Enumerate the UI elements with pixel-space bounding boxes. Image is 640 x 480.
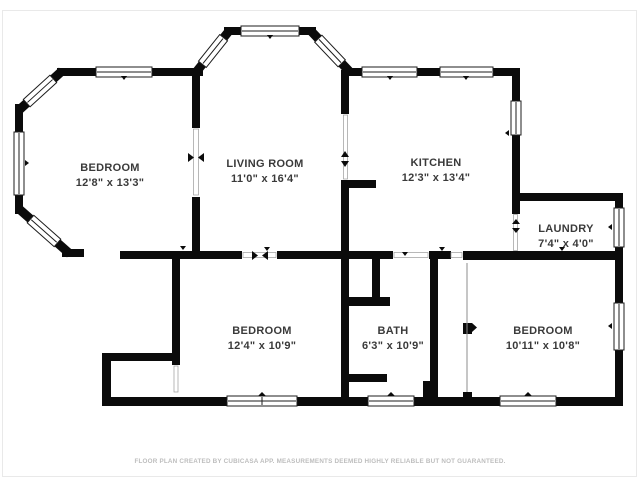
window	[315, 35, 346, 67]
room-dimensions: 7'4" x 4'0"	[538, 237, 594, 252]
window	[614, 303, 624, 350]
room-dimensions: 6'3" x 10'9"	[362, 339, 424, 354]
room-dimensions: 12'4" x 10'9"	[228, 339, 297, 354]
window	[614, 208, 624, 247]
room-dimensions: 10'11" x 10'8"	[506, 339, 580, 354]
room-label-living-room: LIVING ROOM 11'0" x 16'4"	[226, 157, 303, 186]
floor-plan-page: BEDROOM 12'8" x 13'3" LIVING ROOM 11'0" …	[0, 0, 640, 480]
room-dimensions: 11'0" x 16'4"	[226, 172, 303, 187]
window	[362, 67, 417, 77]
room-dimensions: 12'8" x 13'3"	[76, 176, 145, 191]
window	[96, 67, 152, 77]
room-name: BEDROOM	[228, 324, 297, 339]
room-label-laundry: LAUNDRY 7'4" x 4'0"	[538, 222, 594, 251]
window	[227, 396, 297, 406]
window	[23, 75, 56, 107]
room-name: LAUNDRY	[538, 222, 594, 237]
room-name: BEDROOM	[506, 324, 580, 339]
window	[198, 35, 227, 68]
window	[440, 67, 493, 77]
room-label-bedroom-1: BEDROOM 12'8" x 13'3"	[76, 161, 145, 190]
window	[511, 101, 521, 135]
room-label-kitchen: KITCHEN 12'3" x 13'4"	[402, 156, 471, 185]
room-label-bath: BATH 6'3" x 10'9"	[362, 324, 424, 353]
window	[368, 396, 414, 406]
room-name: KITCHEN	[402, 156, 471, 171]
window	[241, 26, 299, 36]
footer-disclaimer: FLOOR PLAN CREATED BY CUBICASA APP. MEAS…	[134, 458, 505, 465]
window	[500, 396, 556, 406]
room-label-bedroom-2: BEDROOM 12'4" x 10'9"	[228, 324, 297, 353]
room-name: BATH	[362, 324, 424, 339]
room-label-bedroom-3: BEDROOM 10'11" x 10'8"	[506, 324, 580, 353]
window	[14, 132, 24, 195]
room-name: BEDROOM	[76, 161, 145, 176]
room-name: LIVING ROOM	[226, 157, 303, 172]
window	[27, 215, 61, 246]
room-dimensions: 12'3" x 13'4"	[402, 171, 471, 186]
